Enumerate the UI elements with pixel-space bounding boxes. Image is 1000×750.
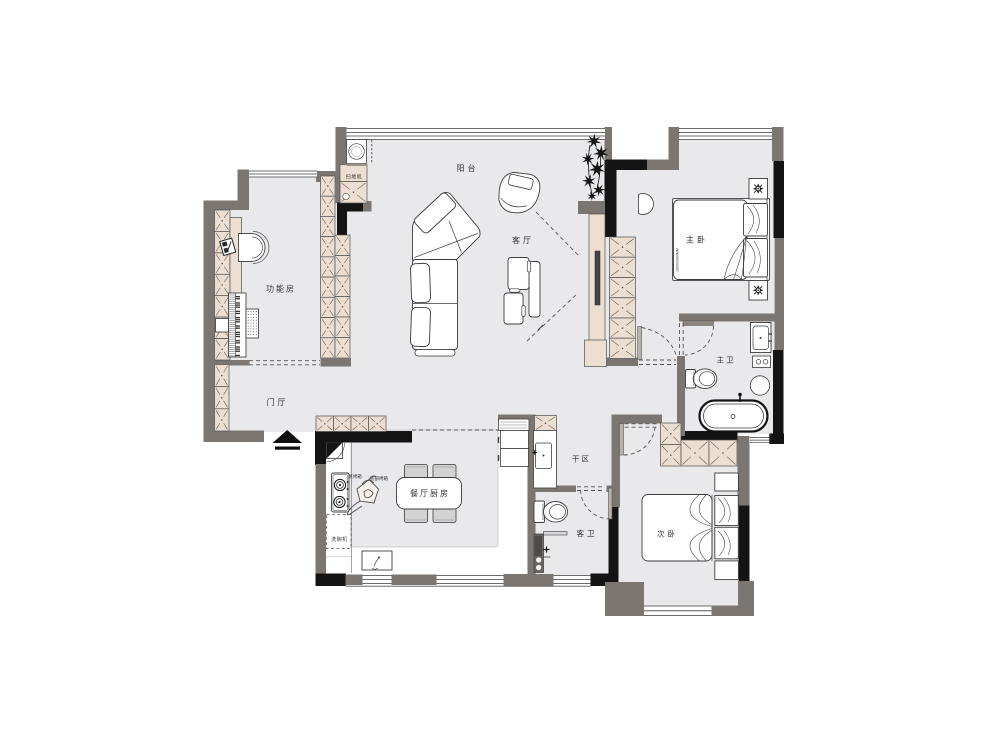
- svg-text:扫地机: 扫地机: [346, 174, 363, 181]
- svg-text:主卫: 主卫: [717, 355, 736, 365]
- svg-text:洗碗机: 洗碗机: [331, 536, 348, 543]
- svg-text:次卧: 次卧: [657, 529, 678, 539]
- svg-text:阳台: 阳台: [457, 163, 479, 173]
- svg-text:主卧: 主卧: [686, 235, 708, 245]
- svg-text:门厅: 门厅: [267, 397, 289, 407]
- svg-text:客厅: 客厅: [512, 235, 534, 245]
- svg-text:1800X2000MM: 1800X2000MM: [676, 248, 680, 272]
- svg-text:功能房: 功能房: [266, 284, 296, 294]
- svg-text:干区: 干区: [572, 455, 591, 464]
- svg-text:蒸烤箱: 蒸烤箱: [348, 473, 362, 480]
- svg-text:餐厅厨房: 餐厅厨房: [410, 488, 450, 498]
- svg-text:客卫: 客卫: [577, 528, 598, 538]
- svg-text:底部烤箱: 底部烤箱: [370, 475, 388, 482]
